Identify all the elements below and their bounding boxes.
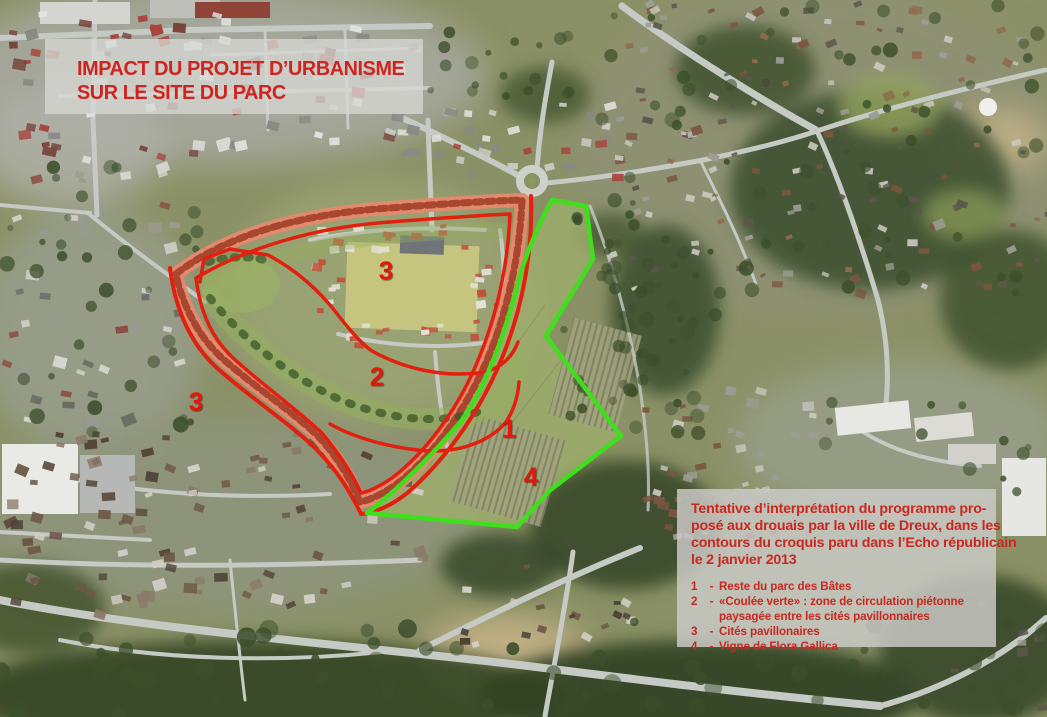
legend-item-dash: - [704,594,719,624]
legend-item-label: Reste du parc des Bâtes [719,579,984,594]
legend-item-number: 2 [691,594,704,624]
legend-item-label: Vigne de Flora Gallica [719,639,984,654]
legend-item-dash: - [704,624,719,639]
legend-item-number: 3 [691,624,704,639]
legend-item: 4 - Vigne de Flora Gallica [691,639,984,654]
page-title-line2: SUR LE SITE DU PARC [77,82,420,106]
zone-number-label: 4 [524,462,538,493]
legend-item-dash: - [704,579,719,594]
title-banner: IMPACT DU PROJET D’URBANISME SUR LE SITE… [45,39,423,114]
legend-item: 1 - Reste du parc des Bâtes [691,579,984,594]
legend-item-number: 4 [691,639,704,654]
page-title-line1: IMPACT DU PROJET D’URBANISME [77,58,420,82]
legend-item-label: «Coulée verte» : zone de circulation pié… [719,594,984,624]
zone-number-label: 3 [379,256,393,287]
legend-paragraph-line: contours du croquis paru dans l’Echo rép… [691,535,984,552]
legend-item-list: 1 - Reste du parc des Bâtes 2 - «Coulée … [691,579,984,654]
legend-paragraph-line: posé aux drouais par la ville de Dreux, … [691,518,984,535]
aerial-map-view: 32314 IMPACT DU PROJET D’URBANISME SUR L… [0,0,1047,717]
legend-item-number: 1 [691,579,704,594]
zone-number-label: 1 [502,414,516,445]
legend-paragraph-line: Tentative d’interprétation du programme … [691,501,984,518]
legend-paragraph-line: le 2 janvier 2013 [691,552,984,569]
zone-number-label: 2 [370,362,384,393]
roundabout [520,169,544,193]
legend-item: 3 - Cités pavillonaires [691,624,984,639]
legend-item-dash: - [704,639,719,654]
zone-number-label: 3 [189,387,203,418]
legend-item-label: Cités pavillonaires [719,624,984,639]
legend-item: 2 - «Coulée verte» : zone de circulation… [691,594,984,624]
legend-panel: Tentative d’interprétation du programme … [677,489,996,647]
